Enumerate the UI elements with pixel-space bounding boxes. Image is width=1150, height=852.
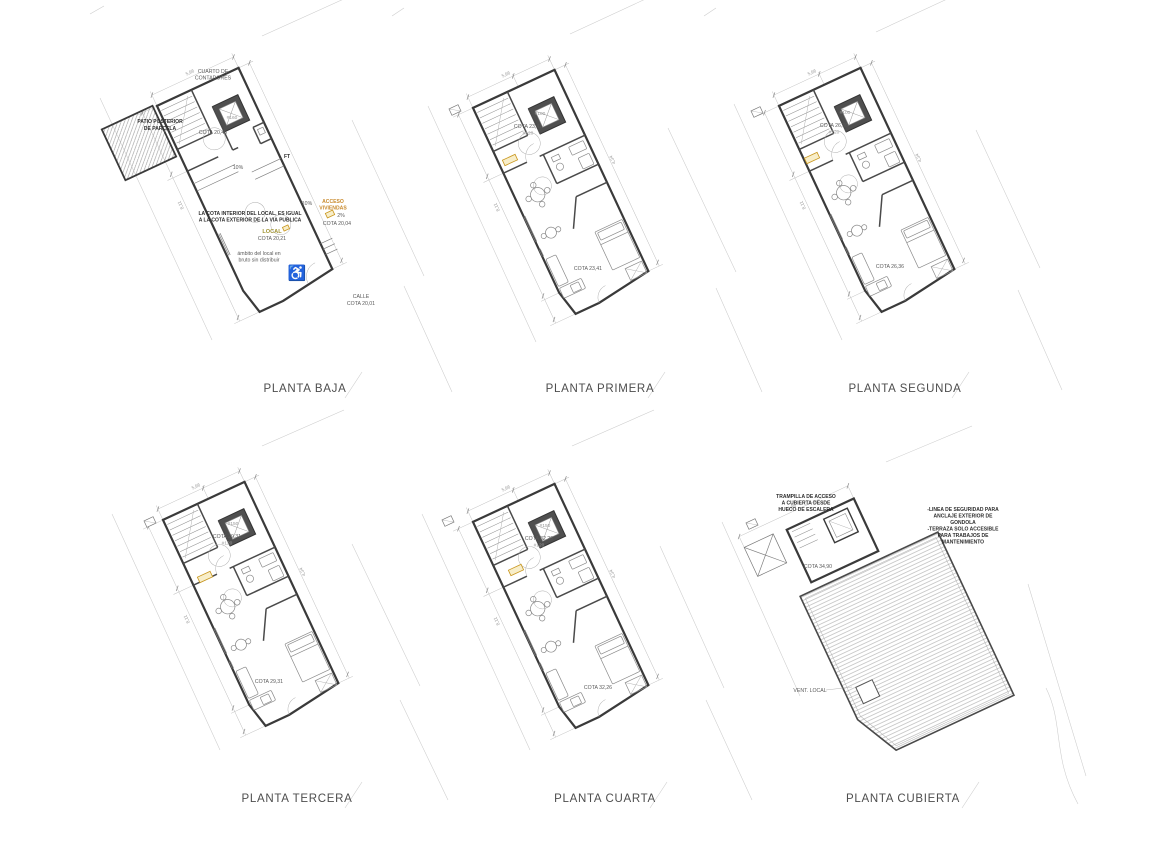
gondola-note: -LINEA DE SEGURIDAD PARA (927, 507, 999, 513)
dim-depth-a: 8,11 (176, 200, 184, 210)
floor-label-planta-cubierta: PLANTA CUBIERTA (846, 793, 960, 805)
calle-label: CALLE (353, 294, 370, 300)
floor-plan-planta-cubierta: 5,96 (734, 453, 1014, 773)
cota-annotation: COTA 29,31 (213, 534, 241, 540)
cota-annotation: COTA 20,04 (323, 221, 351, 227)
room-code: #150 (540, 523, 551, 529)
floor-label-planta-tercera: PLANTA TERCERA (242, 793, 353, 805)
architectural-plans-sheet: 5,96 8,11 4,34 (0, 0, 1150, 852)
cota-annotation: COTA 20,45 (199, 130, 227, 136)
cota-annotation: COTA 20,21 (258, 236, 286, 242)
cota-annotation: COTA 29,31 (255, 679, 283, 685)
meters-note: CONTADORES (195, 76, 232, 82)
gondola-note: -TERRAZA SOLO ACCESIBLE (927, 527, 999, 533)
floor-plan-planta-baja: 5,96 8,11 (95, 44, 351, 340)
cota-annotation: COTA 23,41 (514, 124, 542, 130)
floor-plan-planta-cuarta (444, 459, 667, 740)
wheelchair-icon: ♿ (288, 264, 307, 282)
ramp-slope: 10% (233, 165, 244, 171)
floor-label-planta-cuarta: PLANTA CUARTA (554, 793, 656, 805)
local-cota-note: A LA COTA EXTERIOR DE LA VIA PUBLICA (199, 218, 302, 224)
room-code: #100 (535, 111, 546, 117)
floor-label-planta-baja: PLANTA BAJA (264, 383, 347, 395)
floor-plan-planta-segunda (750, 43, 973, 324)
floor-label-planta-segunda: PLANTA SEGUNDA (848, 383, 961, 395)
ambito-note: ámbito del local en (237, 251, 280, 257)
plans-sheet-svg: 5,96 8,11 4,34 (0, 0, 1150, 852)
patio-note: DE PARCELA (144, 126, 177, 132)
trampilla-note: HUECO DE ESCALERA (778, 507, 834, 513)
room-code: #120 (523, 131, 534, 137)
ambito-note: bruto sin distribuir (239, 258, 280, 264)
room-code: #150 (228, 521, 239, 527)
ft-label: FT (284, 154, 290, 160)
cota-annotation: COTA 34,90 (804, 564, 832, 570)
trampilla-note: A CUBIERTA DESDE (782, 501, 831, 507)
cota-annotation: COTA 32,26 (584, 685, 612, 691)
patio-note: PATIO POSTERIOR (137, 119, 183, 125)
dim-width: 5,96 (185, 68, 196, 76)
room-code: #160 (227, 115, 238, 121)
vent-local-label: VENT. LOCAL (793, 688, 826, 694)
floor-label-planta-primera: PLANTA PRIMERA (546, 383, 655, 395)
acceso-viviendas-note: VIVIENDAS (319, 206, 347, 212)
gondola-note: PARA TRABAJOS DE (938, 533, 990, 539)
gondola-note: MANTENIMIENTO (942, 540, 984, 546)
cota-annotation: COTA 26,36 (820, 123, 848, 129)
room-code: #120 (222, 541, 233, 547)
room-code: #120 (534, 543, 545, 549)
acceso-slope: 2% (337, 213, 345, 219)
meters-note: CUARTO DE (198, 69, 229, 75)
floor-plan-planta-tercera (134, 457, 357, 738)
room-code: #100 (840, 110, 851, 116)
ramp-slope: 10% (302, 201, 313, 207)
gondola-note: ANCLAJE EXTERIOR DE (934, 514, 994, 520)
local-label: LOCAL (262, 229, 282, 235)
floor-plan-planta-primera (444, 45, 667, 326)
acceso-viviendas-note: ACCESO (322, 199, 344, 205)
room-code: #120 (829, 130, 840, 136)
cota-annotation: COTA 23,41 (574, 266, 602, 272)
local-cota-note: LA COTA INTERIOR DEL LOCAL, ES IGUAL (198, 211, 301, 217)
cota-annotation: COTA 32,26 (525, 536, 553, 542)
gondola-note: GONDOLA (950, 520, 976, 526)
cota-annotation: COTA 26,36 (876, 264, 904, 270)
cota-annotation: COTA 20,01 (347, 301, 375, 307)
trampilla-note: TRAMPILLA DE ACCESO (776, 494, 836, 500)
